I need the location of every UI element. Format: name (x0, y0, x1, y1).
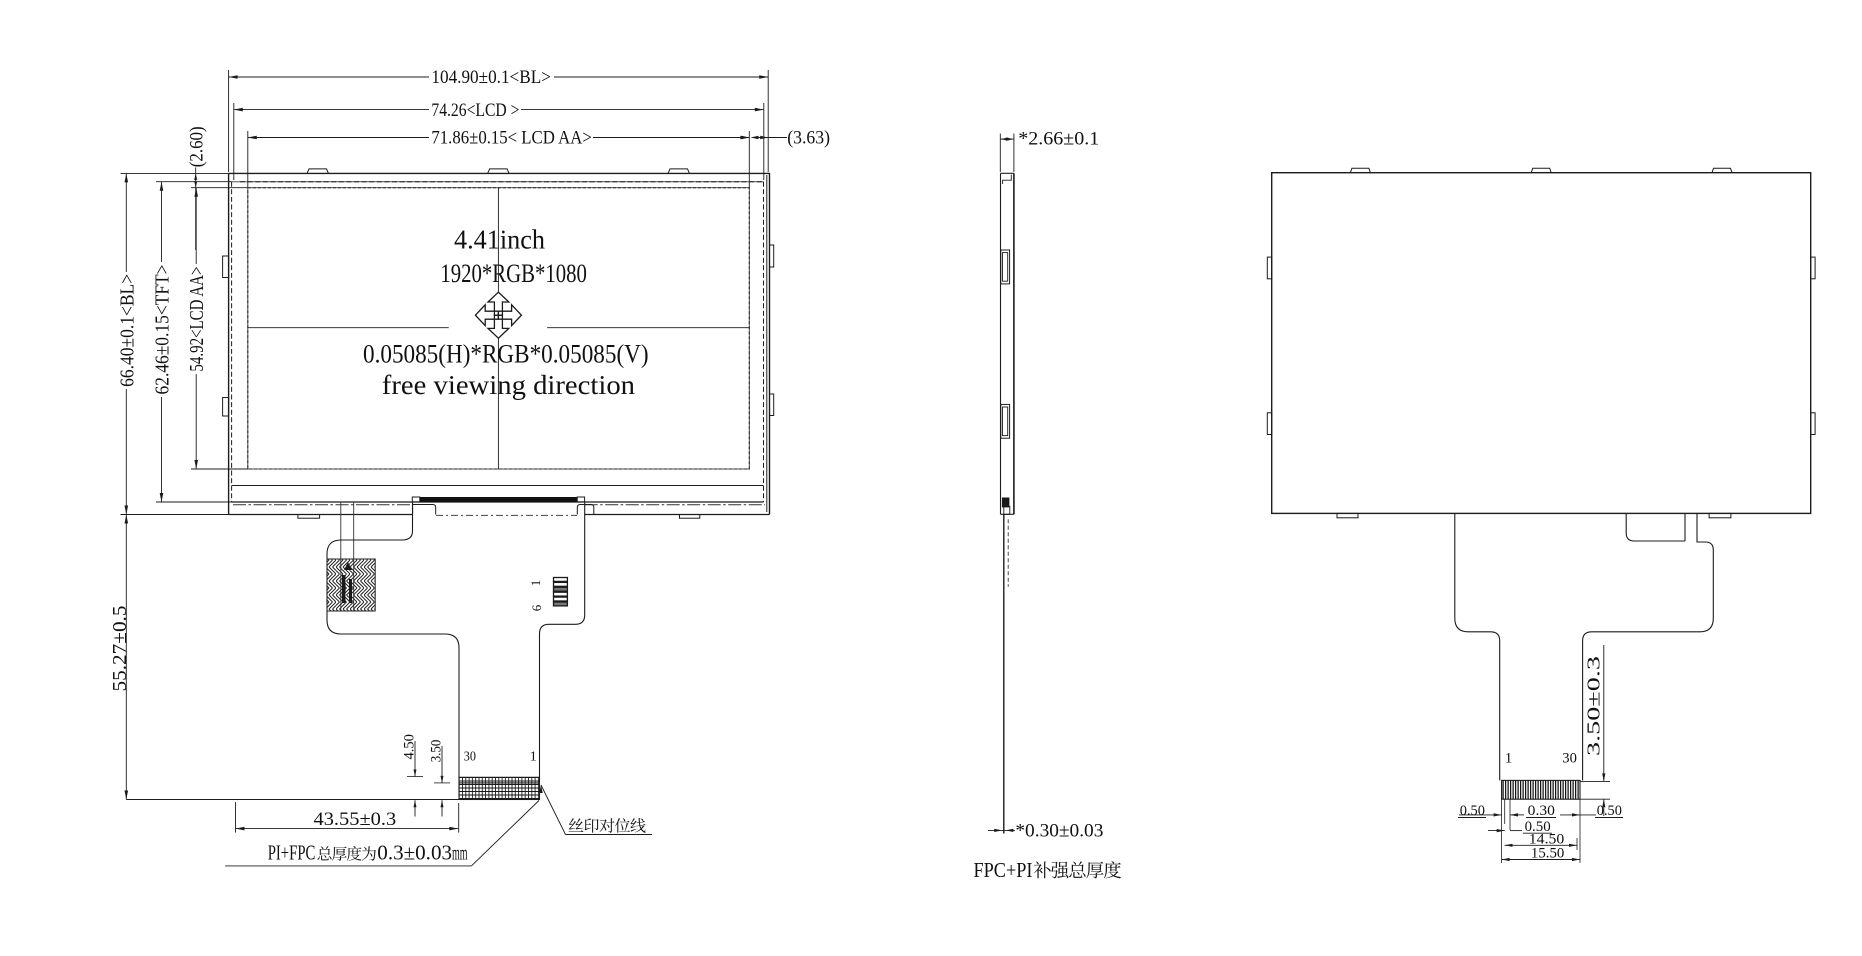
svg-text:104.90±0.1<BL>: 104.90±0.1<BL> (431, 67, 551, 88)
svg-text:1: 1 (528, 580, 543, 587)
svg-text:3.50: 3.50 (429, 740, 445, 763)
svg-text:*0.30±0.03: *0.30±0.03 (1015, 820, 1103, 841)
svg-text:0.50: 0.50 (1460, 803, 1485, 819)
svg-text:1920*RGB*1080: 1920*RGB*1080 (440, 259, 587, 288)
svg-text:(2.60): (2.60) (187, 126, 208, 167)
svg-text:66.40±0.1<BL>: 66.40±0.1<BL> (116, 274, 138, 387)
svg-text:43.55±0.3: 43.55±0.3 (314, 809, 397, 830)
svg-text:(3.63): (3.63) (787, 127, 830, 148)
svg-text:1: 1 (530, 750, 537, 765)
svg-text:71.86±0.15< LCD AA>: 71.86±0.15< LCD AA> (431, 127, 591, 148)
svg-text:0.05085(H)*RGB*0.05085(V): 0.05085(H)*RGB*0.05085(V) (363, 340, 649, 369)
svg-text:55.27±0.5: 55.27±0.5 (109, 606, 131, 692)
svg-text:30: 30 (464, 750, 476, 765)
svg-text:FPC+PI: FPC+PI (974, 858, 1033, 882)
svg-text:*2.66±0.1: *2.66±0.1 (1018, 129, 1099, 150)
svg-text:4.50: 4.50 (402, 734, 418, 759)
svg-text:6: 6 (529, 604, 544, 611)
svg-text:74.26<LCD >: 74.26<LCD > (431, 100, 519, 121)
svg-text:free viewing direction: free viewing direction (382, 370, 636, 400)
svg-text:0.30: 0.30 (1528, 803, 1555, 819)
svg-text:30: 30 (1562, 751, 1577, 767)
svg-text:0.50: 0.50 (1597, 803, 1622, 819)
svg-text:4.41inch: 4.41inch (454, 225, 545, 255)
svg-text:15.50: 15.50 (1531, 846, 1564, 862)
svg-text:62.46±0.15<TFT>: 62.46±0.15<TFT> (152, 265, 174, 395)
svg-text:PI+FPC: PI+FPC (268, 841, 316, 865)
svg-text:mm: mm (452, 841, 468, 865)
svg-text:0.3±0.03: 0.3±0.03 (377, 841, 452, 865)
svg-text:54.92<LCD AA>: 54.92<LCD AA> (186, 267, 208, 372)
svg-text:3.50±0.3: 3.50±0.3 (1584, 656, 1604, 756)
svg-text:1: 1 (1505, 751, 1513, 767)
